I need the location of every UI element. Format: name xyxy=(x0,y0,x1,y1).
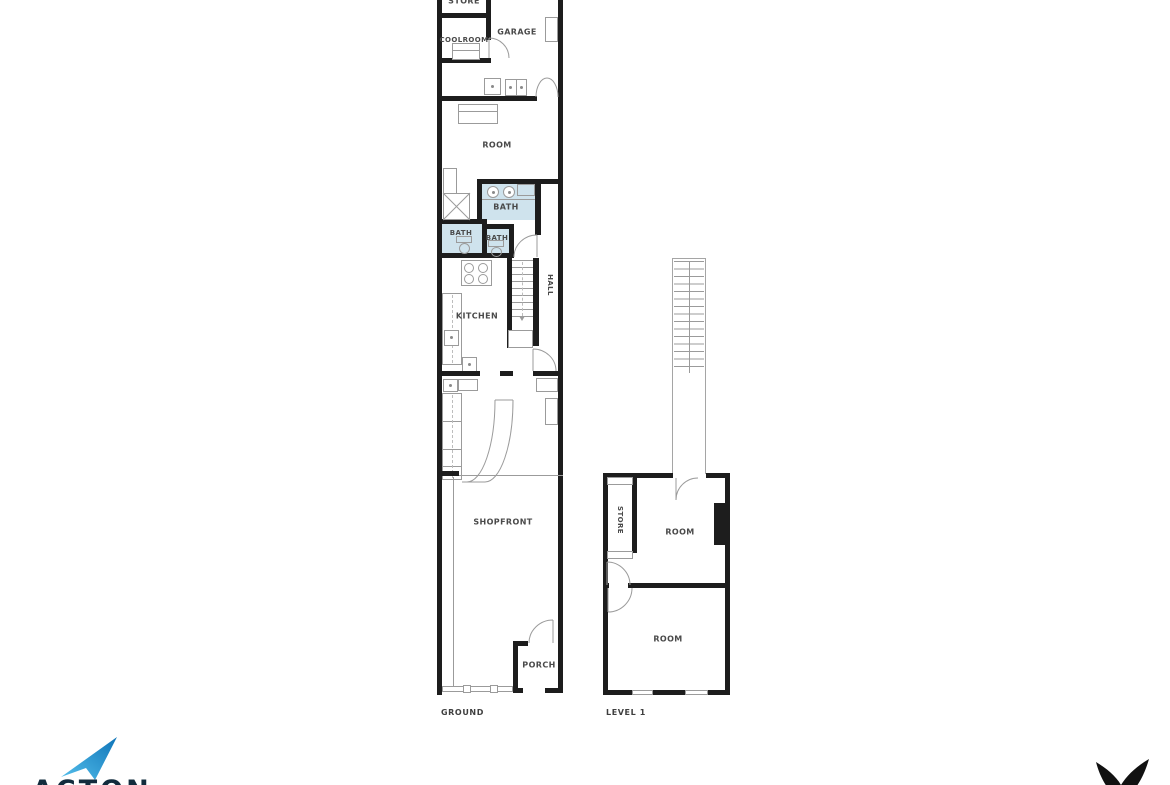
shopfront-line xyxy=(453,477,454,686)
ground-caption: GROUND xyxy=(441,708,484,717)
label-bath-main: BATH xyxy=(493,203,518,212)
stair-centerline xyxy=(522,262,523,316)
arrow-shape xyxy=(61,737,117,780)
counter-curve xyxy=(462,400,513,482)
wall xyxy=(533,371,563,376)
level1-caption: LEVEL 1 xyxy=(606,708,646,717)
wall xyxy=(545,688,563,693)
wall xyxy=(513,641,528,646)
store-shelf xyxy=(607,477,633,485)
wall xyxy=(477,179,482,223)
bird-logo-icon xyxy=(1090,755,1160,785)
burner xyxy=(478,263,488,273)
sink-dot xyxy=(449,384,452,387)
window xyxy=(632,690,653,695)
label-porch: PORCH xyxy=(522,661,555,670)
window xyxy=(685,690,708,695)
wall xyxy=(632,473,637,553)
burner xyxy=(464,274,474,284)
bed-pillow-line xyxy=(458,111,498,112)
coolroom-unit-line xyxy=(452,50,480,51)
bird-shape xyxy=(1096,759,1149,785)
label-kitchen: KITCHEN xyxy=(456,312,498,321)
label-l1-store: STORE xyxy=(616,506,624,534)
label-bath-right: BATH xyxy=(486,234,508,242)
wall xyxy=(442,371,480,376)
sink-dot xyxy=(468,363,471,366)
wall xyxy=(558,0,563,693)
label-room: ROOM xyxy=(482,141,511,150)
burner xyxy=(464,263,474,273)
chimney xyxy=(714,503,725,545)
vanity-counter-line xyxy=(482,199,535,200)
label-coolroom: COOLROOM xyxy=(440,36,489,44)
counter xyxy=(458,379,478,391)
label-hall: HALL xyxy=(546,274,554,296)
wall xyxy=(706,473,730,478)
wall xyxy=(533,258,539,346)
door-arc xyxy=(529,620,553,643)
shower xyxy=(443,193,470,220)
door-arc xyxy=(514,235,537,257)
wall xyxy=(603,583,609,588)
door-arc xyxy=(489,38,509,58)
plan-curves-layer xyxy=(0,0,1170,785)
label-garage: GARAGE xyxy=(497,28,537,37)
label-l1-room-lower: ROOM xyxy=(653,635,682,644)
wall xyxy=(603,690,632,695)
stair-centerline xyxy=(689,261,690,373)
shelf-centerline xyxy=(452,395,453,478)
stair-arrow xyxy=(519,316,525,321)
window-mullion xyxy=(463,685,471,693)
door-arc xyxy=(533,349,556,371)
wall xyxy=(437,96,537,101)
wall xyxy=(513,643,518,693)
basin-dot xyxy=(509,86,512,89)
door-arc xyxy=(536,78,558,97)
appliance-dot xyxy=(491,85,494,88)
toilet-icon xyxy=(456,236,472,243)
label-l1-room-upper: ROOM xyxy=(665,528,694,537)
window-mullion xyxy=(490,685,498,693)
wardrobe xyxy=(443,168,457,196)
wall-unit xyxy=(545,398,558,425)
window xyxy=(442,686,513,692)
counter-centerline xyxy=(452,295,453,363)
label-shopfront: SHOPFRONT xyxy=(473,518,532,527)
toilet-icon xyxy=(491,247,502,257)
store-shelf xyxy=(607,551,633,559)
label-bath-left: BATH xyxy=(450,229,472,237)
floorplan-page: STORE COOLROOM GARAGE ROOM BATH BATH BAT… xyxy=(0,0,1170,785)
basin-divider xyxy=(516,79,517,96)
bath-bench xyxy=(517,184,535,196)
cupboard xyxy=(508,330,533,348)
door-arc xyxy=(607,562,630,585)
wall xyxy=(707,690,730,695)
shopfront-line xyxy=(459,475,563,476)
sink-dot xyxy=(450,336,453,339)
wall xyxy=(437,253,514,258)
agency-name: ACTON xyxy=(32,775,152,785)
wall xyxy=(500,371,513,376)
label-store: STORE xyxy=(448,0,480,6)
wall xyxy=(437,13,491,18)
burner xyxy=(478,274,488,284)
wall xyxy=(535,179,541,235)
garage-cupboard xyxy=(545,17,558,42)
wall xyxy=(437,471,459,476)
sink-dot xyxy=(508,191,511,194)
basin-dot xyxy=(520,86,523,89)
wall xyxy=(653,690,685,695)
wall xyxy=(513,688,523,693)
bed xyxy=(458,104,498,124)
sink-dot xyxy=(492,191,495,194)
door-arc xyxy=(608,588,632,612)
wall xyxy=(628,583,730,588)
shelf xyxy=(536,378,558,392)
coolroom-unit xyxy=(452,43,480,60)
door-arc xyxy=(676,478,698,500)
toilet-icon xyxy=(459,243,470,254)
